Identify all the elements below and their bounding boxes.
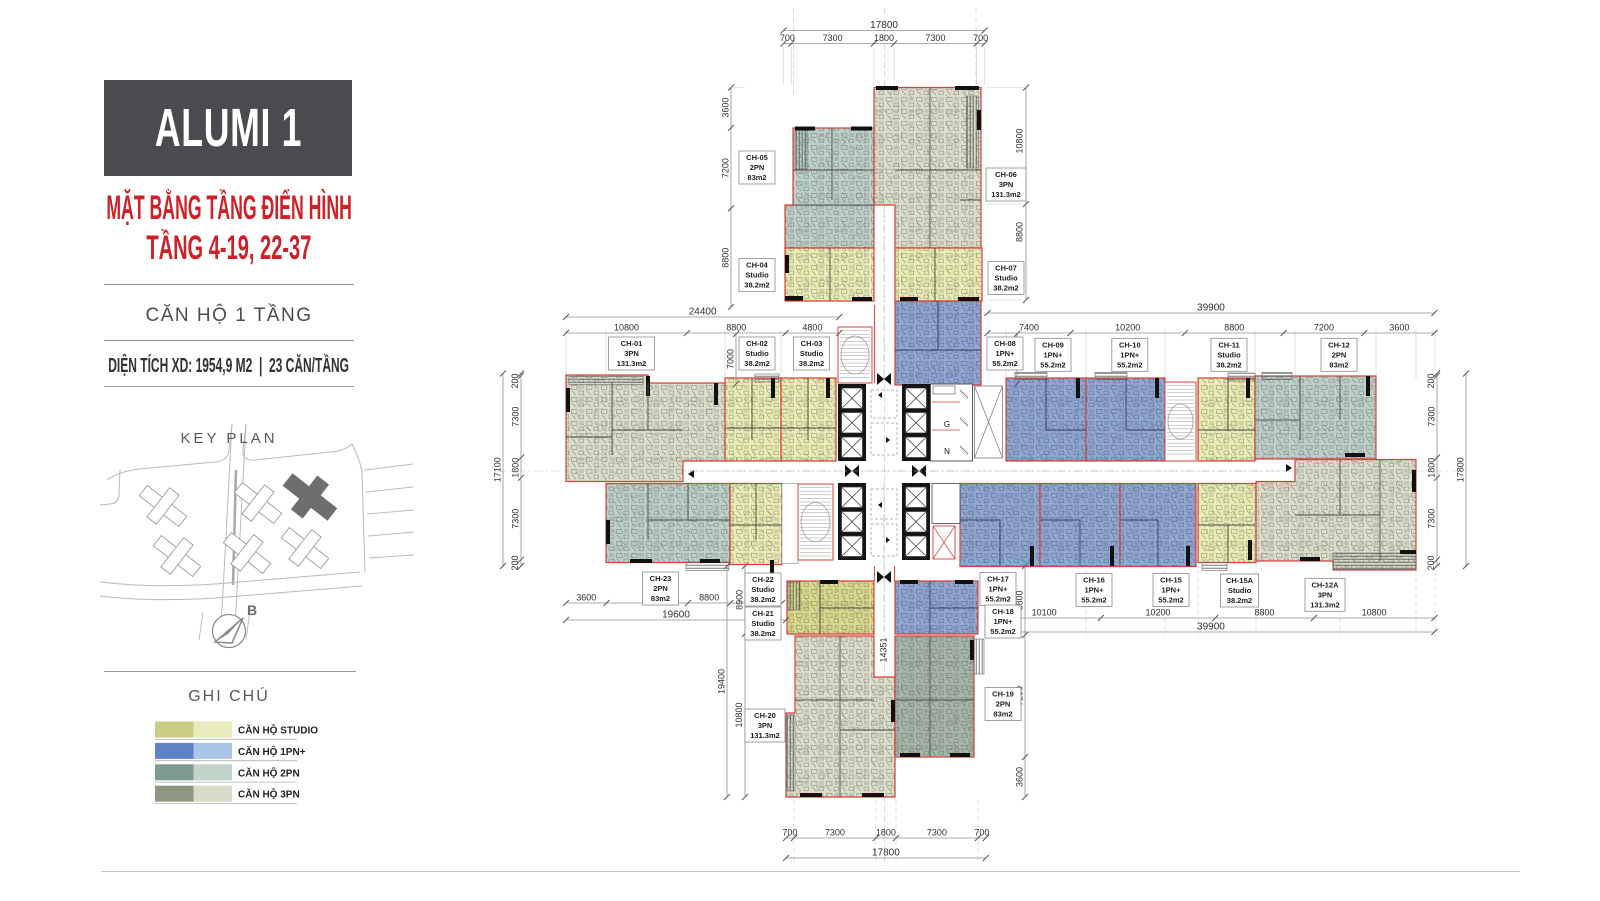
- svg-text:55.2m2: 55.2m2: [992, 359, 1017, 368]
- svg-text:4800: 4800: [802, 323, 822, 333]
- svg-text:24400: 24400: [689, 307, 717, 318]
- svg-text:CH-08: CH-08: [994, 339, 1016, 348]
- svg-text:7300: 7300: [927, 828, 947, 838]
- svg-text:3600: 3600: [1389, 323, 1409, 333]
- svg-text:CH-12A: CH-12A: [1311, 580, 1339, 589]
- svg-text:Studio: Studio: [751, 619, 775, 628]
- svg-text:3600: 3600: [576, 593, 596, 603]
- svg-text:N: N: [944, 447, 950, 456]
- svg-text:1800: 1800: [876, 828, 896, 838]
- svg-text:CĂN HỘ 2PN: CĂN HỘ 2PN: [238, 766, 300, 779]
- svg-text:1PN+: 1PN+: [996, 349, 1016, 358]
- svg-text:CĂN HỘ 1PN+: CĂN HỘ 1PN+: [238, 745, 306, 758]
- svg-text:7300: 7300: [511, 407, 521, 427]
- svg-text:1PN+: 1PN+: [994, 617, 1014, 626]
- svg-text:39900: 39900: [1197, 622, 1225, 633]
- svg-text:CH-17: CH-17: [987, 575, 1009, 584]
- svg-text:CH-09: CH-09: [1042, 340, 1064, 349]
- svg-text:CH-15: CH-15: [1160, 576, 1182, 585]
- svg-text:83m2: 83m2: [1329, 360, 1348, 369]
- svg-text:CH-16: CH-16: [1083, 576, 1105, 585]
- svg-text:CH-05: CH-05: [746, 153, 768, 162]
- svg-text:1PN+: 1PN+: [1044, 350, 1064, 359]
- svg-text:1PN+: 1PN+: [1120, 350, 1140, 359]
- svg-text:38.2m2: 38.2m2: [744, 281, 769, 290]
- svg-text:83m2: 83m2: [747, 173, 766, 182]
- svg-text:7400: 7400: [1019, 323, 1039, 333]
- svg-text:38.2m2: 38.2m2: [993, 284, 1018, 293]
- svg-text:55.2m2: 55.2m2: [985, 595, 1010, 604]
- svg-text:1PN+: 1PN+: [989, 585, 1009, 594]
- svg-text:8800: 8800: [726, 323, 746, 333]
- svg-text:131.3m2: 131.3m2: [991, 190, 1021, 199]
- svg-text:10800: 10800: [614, 323, 639, 333]
- svg-text:131.3m2: 131.3m2: [617, 359, 647, 368]
- svg-text:200: 200: [1426, 555, 1436, 570]
- svg-text:700: 700: [780, 33, 795, 43]
- svg-text:Studio: Studio: [1228, 586, 1252, 595]
- svg-text:CH-10: CH-10: [1119, 340, 1141, 349]
- svg-text:1PN+: 1PN+: [1162, 586, 1182, 595]
- svg-text:8800: 8800: [1015, 222, 1025, 242]
- svg-text:7200: 7200: [721, 158, 731, 178]
- svg-text:131.3m2: 131.3m2: [1310, 600, 1340, 609]
- svg-text:55.2m2: 55.2m2: [1081, 596, 1106, 605]
- svg-text:10100: 10100: [1032, 608, 1057, 618]
- svg-text:2PN: 2PN: [653, 584, 668, 593]
- svg-text:CH-03: CH-03: [801, 339, 823, 348]
- svg-text:3PN: 3PN: [758, 721, 773, 730]
- svg-text:39900: 39900: [1197, 303, 1225, 314]
- svg-text:200: 200: [510, 555, 520, 570]
- svg-text:8900: 8900: [735, 590, 745, 610]
- svg-text:1800: 1800: [1427, 458, 1437, 478]
- svg-text:CH-22: CH-22: [752, 575, 774, 584]
- svg-text:7000: 7000: [726, 349, 736, 369]
- svg-text:8800: 8800: [721, 248, 731, 268]
- svg-text:CH-07: CH-07: [995, 264, 1017, 273]
- svg-text:8800: 8800: [1224, 323, 1244, 333]
- svg-text:Studio: Studio: [994, 274, 1018, 283]
- svg-text:17800: 17800: [870, 20, 898, 31]
- svg-text:1800: 1800: [511, 458, 521, 478]
- svg-text:700: 700: [782, 828, 797, 838]
- svg-text:700: 700: [973, 33, 988, 43]
- svg-text:38.2m2: 38.2m2: [1227, 596, 1252, 605]
- svg-text:131.3m2: 131.3m2: [750, 731, 780, 740]
- svg-text:8800: 8800: [699, 593, 719, 603]
- svg-text:CH-01: CH-01: [621, 339, 643, 348]
- svg-text:3PN: 3PN: [624, 349, 639, 358]
- svg-text:CĂN HỘ STUDIO: CĂN HỘ STUDIO: [238, 724, 318, 737]
- svg-text:7300: 7300: [823, 33, 843, 43]
- svg-text:83m2: 83m2: [993, 710, 1012, 719]
- svg-text:14351: 14351: [879, 637, 889, 662]
- svg-text:G: G: [944, 420, 950, 429]
- svg-text:8800: 8800: [1255, 608, 1275, 618]
- svg-text:CH-11: CH-11: [1218, 340, 1239, 349]
- svg-text:55.2m2: 55.2m2: [990, 627, 1015, 636]
- svg-text:10800: 10800: [1362, 608, 1387, 618]
- svg-text:B: B: [247, 602, 257, 618]
- svg-text:1PN+: 1PN+: [1085, 586, 1105, 595]
- svg-text:CH-04: CH-04: [746, 261, 769, 270]
- svg-text:Studio: Studio: [1217, 350, 1241, 359]
- svg-text:38.2m2: 38.2m2: [750, 595, 775, 604]
- svg-text:7300: 7300: [1427, 509, 1437, 529]
- svg-text:17800: 17800: [1456, 457, 1466, 482]
- svg-text:19600: 19600: [662, 610, 690, 621]
- svg-text:7300: 7300: [825, 828, 845, 838]
- svg-text:83m2: 83m2: [651, 594, 670, 603]
- svg-text:2PN: 2PN: [996, 700, 1011, 709]
- svg-text:7300: 7300: [925, 33, 945, 43]
- svg-text:55.2m2: 55.2m2: [1117, 360, 1142, 369]
- svg-text:Studio: Studio: [745, 271, 769, 280]
- svg-text:38.2m2: 38.2m2: [744, 359, 769, 368]
- svg-text:1800: 1800: [874, 33, 894, 43]
- svg-text:38.2m2: 38.2m2: [1216, 360, 1241, 369]
- svg-text:3600: 3600: [721, 98, 731, 118]
- svg-text:Studio: Studio: [800, 349, 824, 358]
- svg-text:2PN: 2PN: [750, 163, 765, 172]
- svg-text:Studio: Studio: [751, 585, 775, 594]
- svg-text:2PN: 2PN: [1332, 350, 1347, 359]
- svg-text:38.2m2: 38.2m2: [799, 359, 824, 368]
- svg-text:10800: 10800: [734, 702, 744, 727]
- svg-text:10200: 10200: [1115, 323, 1140, 333]
- svg-text:55.2m2: 55.2m2: [1040, 360, 1065, 369]
- svg-text:200: 200: [1426, 373, 1436, 388]
- svg-text:CH-23: CH-23: [650, 574, 672, 583]
- svg-text:55.2m2: 55.2m2: [1158, 596, 1183, 605]
- svg-text:CH-02: CH-02: [746, 339, 768, 348]
- svg-text:3PN: 3PN: [999, 180, 1014, 189]
- svg-text:3600: 3600: [1015, 767, 1025, 787]
- svg-text:CH-21: CH-21: [752, 609, 774, 618]
- svg-text:17100: 17100: [493, 457, 503, 482]
- svg-text:Studio: Studio: [745, 349, 769, 358]
- svg-text:10200: 10200: [1145, 608, 1170, 618]
- svg-text:CH-06: CH-06: [995, 170, 1017, 179]
- svg-text:3PN: 3PN: [1318, 590, 1333, 599]
- svg-text:7200: 7200: [1314, 323, 1334, 333]
- svg-text:700: 700: [974, 828, 989, 838]
- svg-text:19400: 19400: [717, 669, 727, 694]
- svg-text:17800: 17800: [872, 848, 900, 859]
- svg-text:CH-19: CH-19: [992, 690, 1014, 699]
- svg-text:CH-15A: CH-15A: [1226, 576, 1254, 585]
- svg-text:CĂN HỘ 3PN: CĂN HỘ 3PN: [238, 788, 300, 801]
- svg-text:CH-20: CH-20: [754, 711, 776, 720]
- svg-text:38.2m2: 38.2m2: [750, 629, 775, 638]
- svg-text:7300: 7300: [1427, 407, 1437, 427]
- svg-text:CH-12: CH-12: [1328, 340, 1350, 349]
- svg-text:10800: 10800: [1015, 128, 1025, 153]
- svg-text:7300: 7300: [511, 509, 521, 529]
- svg-text:CH-18: CH-18: [992, 607, 1014, 616]
